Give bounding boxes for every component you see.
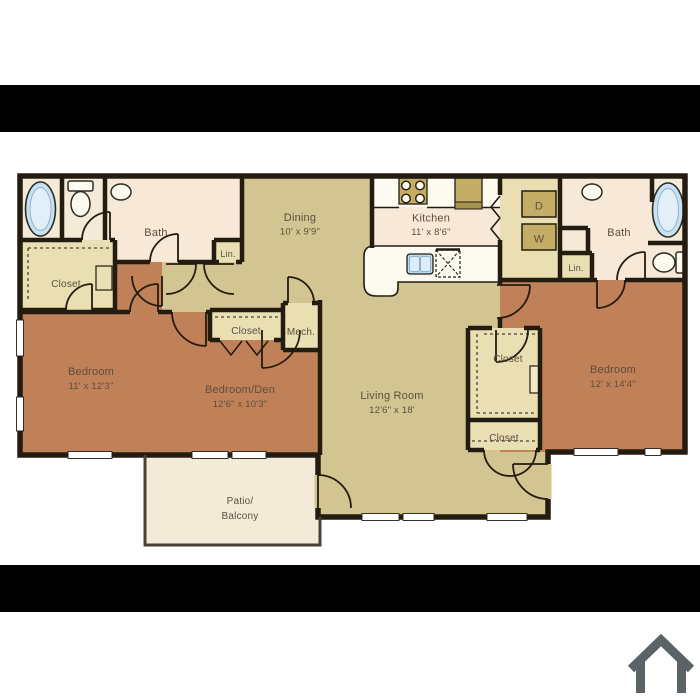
window — [17, 397, 24, 431]
label-mech: Mech. — [287, 327, 315, 338]
stove-icon — [399, 178, 427, 204]
label-bedroom-left: Bedroom — [68, 366, 114, 378]
bathtub-inner-right — [658, 189, 679, 232]
label-dining: Dining — [284, 212, 316, 224]
sink-icon-left — [111, 184, 131, 200]
window — [192, 452, 228, 459]
label-living-room-dims: 12'6" x 18' — [369, 405, 415, 416]
window — [574, 449, 618, 456]
label-living-room: Living Room — [360, 390, 423, 402]
label-kitchen-dims: 11' x 8'6" — [411, 227, 450, 238]
fridge-icon — [455, 178, 482, 209]
floor-fills — [20, 176, 685, 545]
label-bedroom-right-dims: 12' x 14'4" — [590, 379, 636, 390]
label-closet-left: Closet — [51, 279, 81, 290]
floorplan-image: Bath Lin. Closet Dining 10' x 9'9" Kitch… — [0, 0, 700, 700]
floorplan-svg: Bath Lin. Closet Dining 10' x 9'9" Kitch… — [0, 0, 700, 700]
label-kitchen: Kitchen — [412, 213, 450, 225]
bathtub-inner-left — [30, 188, 51, 231]
label-lin-left: Lin. — [220, 249, 235, 259]
window — [487, 514, 527, 521]
label-washer: W — [534, 234, 545, 246]
label-closet-walkin: Closet — [493, 354, 523, 365]
window — [403, 514, 434, 521]
home-icon-walls — [641, 662, 682, 693]
label-bedroom-den: Bedroom/Den — [205, 384, 275, 396]
label-bath-right: Bath — [607, 227, 630, 239]
label-dryer: D — [535, 201, 543, 213]
label-dining-dims: 10' x 9'9" — [280, 227, 320, 238]
label-closet-lower: Closet — [489, 433, 519, 444]
window — [68, 452, 112, 459]
closet-left-shelf-box — [96, 266, 112, 290]
label-bedroom-den-dims: 12'6" x 10'3" — [213, 399, 268, 410]
kitchen-sink-icon — [407, 254, 433, 274]
home-icon[interactable] — [631, 640, 691, 693]
toilet-icon-right — [653, 252, 685, 273]
window — [232, 452, 266, 459]
label-bath-left: Bath — [144, 227, 167, 239]
window — [17, 320, 24, 356]
label-patio-line1: Patio/ — [227, 496, 254, 507]
label-closet-mid: Closet — [231, 326, 261, 337]
dishwasher-icon — [436, 250, 460, 278]
label-bedroom-left-dims: 11' x 12'3" — [69, 381, 114, 392]
window — [362, 514, 399, 521]
entry-door-opening — [545, 464, 552, 499]
floor-closets-right — [468, 328, 540, 450]
window — [645, 449, 661, 456]
label-lin-right: Lin. — [568, 263, 583, 273]
label-patio-line2: Balcony — [222, 511, 259, 522]
label-bedroom-right: Bedroom — [590, 364, 636, 376]
sink-icon-right — [582, 184, 602, 200]
